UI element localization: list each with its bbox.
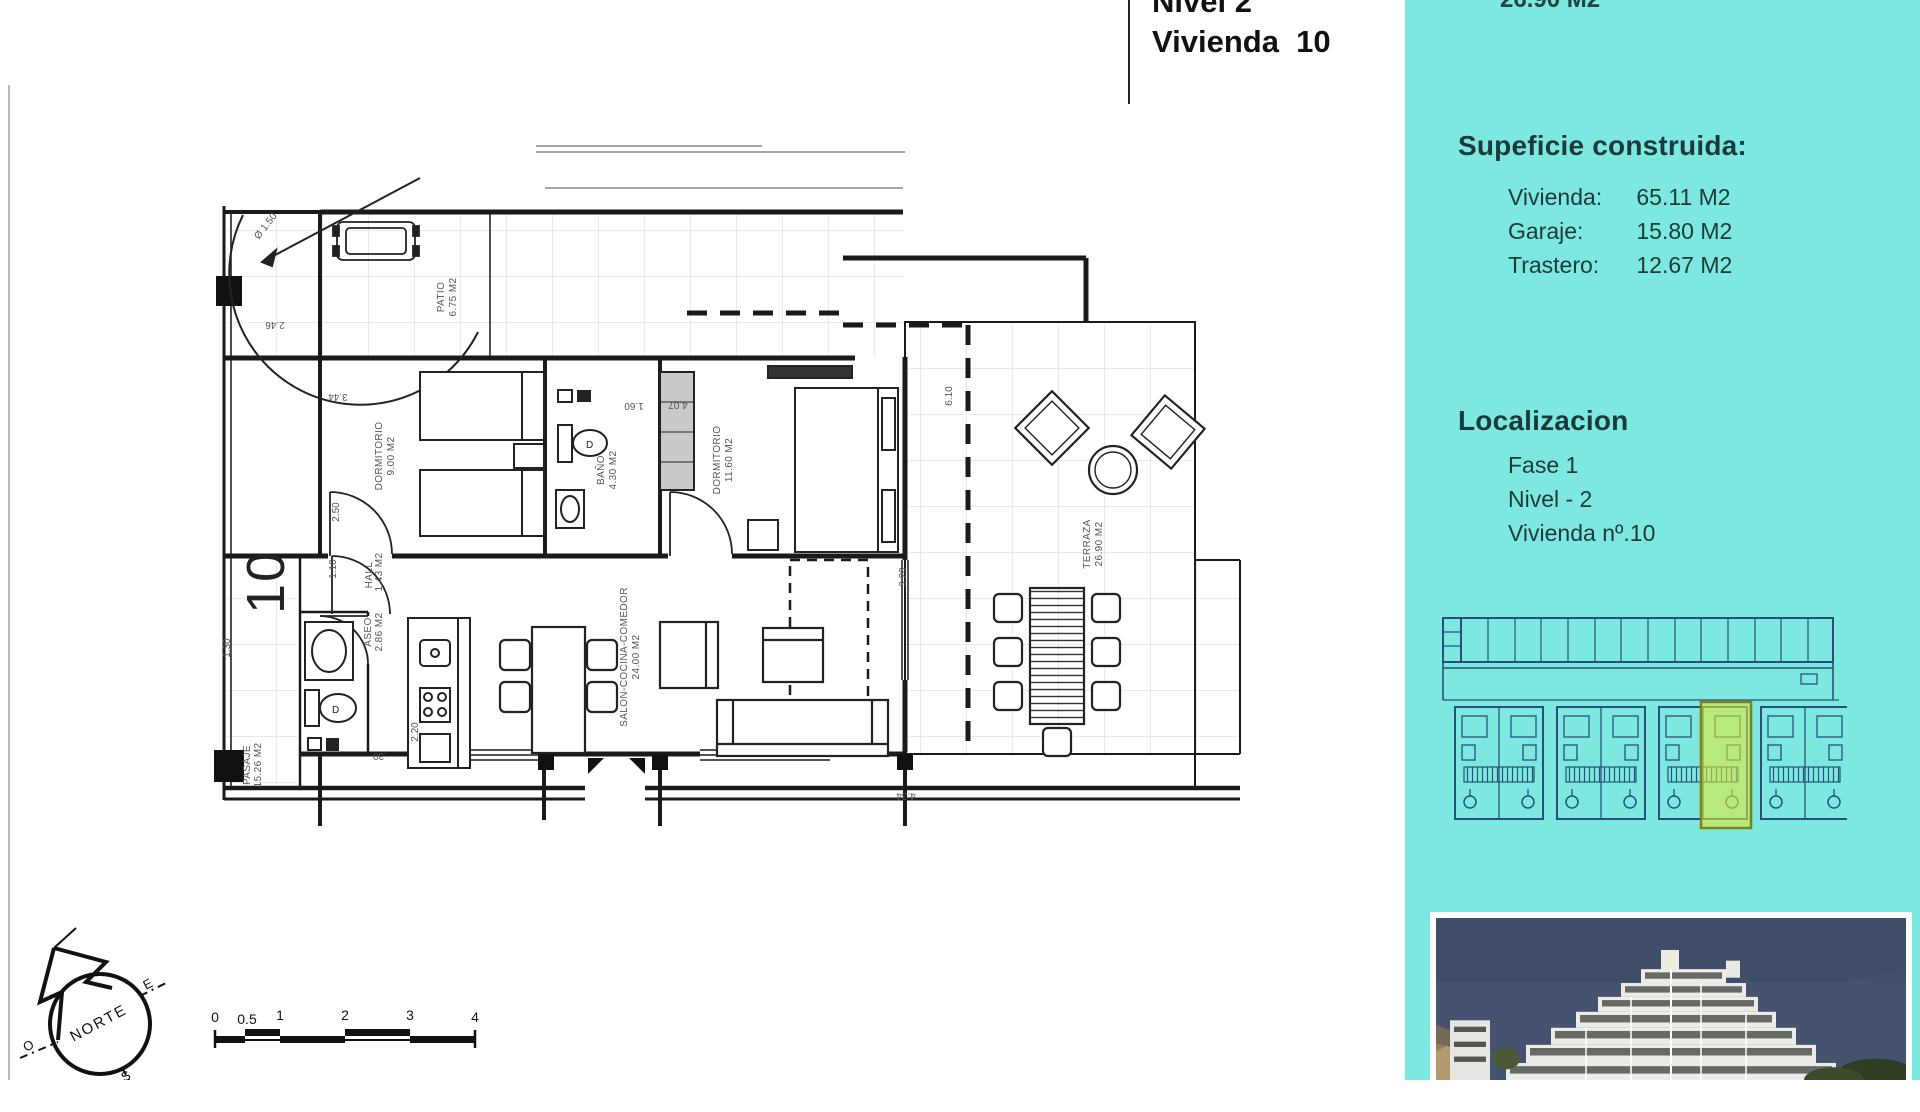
dim-246: 2.46 bbox=[265, 319, 285, 330]
room-area-terraza: 26.90 M2 bbox=[1094, 522, 1105, 567]
dim-130: 1.30 bbox=[222, 638, 233, 658]
building-photo bbox=[1436, 918, 1906, 1080]
surface-value: 15.80 M2 bbox=[1636, 218, 1732, 244]
title-vivienda: Vivienda 10 bbox=[1152, 22, 1331, 62]
surface-label: Trastero: bbox=[1508, 248, 1630, 282]
location-row-fase: Fase 1 bbox=[1508, 448, 1655, 482]
surface-label: Vivienda: bbox=[1508, 180, 1630, 214]
scale-tick-0: 0 bbox=[211, 1009, 219, 1025]
room-area-hall: 1.43 M2 bbox=[374, 552, 385, 591]
room-area-aseo: 2.86 M2 bbox=[374, 612, 385, 651]
room-label-bano: BAÑO bbox=[594, 455, 607, 485]
site-plan-thumbnail bbox=[1435, 612, 1847, 838]
svg-text:D: D bbox=[586, 440, 593, 451]
header-divider bbox=[1128, 0, 1130, 104]
room-label-patio: PATIO bbox=[436, 282, 447, 313]
room-area-patio: 6.75 M2 bbox=[448, 277, 459, 316]
info-sidebar: 26.90 M2 Supeficie construida: Vivienda:… bbox=[1405, 0, 1920, 1080]
boundary-lines bbox=[536, 146, 905, 188]
page-edge-line bbox=[8, 85, 10, 1080]
scale-tick-3: 3 bbox=[406, 1007, 414, 1023]
bedroom2-furniture bbox=[748, 366, 898, 552]
surface-value: 65.11 M2 bbox=[1636, 184, 1730, 210]
room-area-salon: 24.00 M2 bbox=[631, 635, 642, 680]
surface-value: 12.67 M2 bbox=[1636, 252, 1732, 278]
dim-160: 1.60 bbox=[624, 400, 644, 411]
scale-tick-4: 4 bbox=[471, 1009, 479, 1025]
location-rows: Fase 1 Nivel - 2 Vivienda nº.10 bbox=[1508, 448, 1655, 550]
room-area-pasaje: 15.26 M2 bbox=[253, 743, 264, 788]
location-row-vivienda: Vivienda nº.10 bbox=[1508, 516, 1655, 550]
room-label-terraza: TERRAZA bbox=[1082, 519, 1093, 568]
scale-tick-05: 0.5 bbox=[237, 1011, 257, 1027]
title-level: Nivel 2 bbox=[1152, 0, 1252, 22]
dim-610: 6.10 bbox=[944, 386, 955, 406]
surface-row-vivienda: Vivienda: 65.11 M2 bbox=[1508, 180, 1732, 214]
garage-row bbox=[1443, 618, 1839, 700]
salon-seating bbox=[660, 622, 888, 756]
room-label-aseo: ASEO bbox=[363, 617, 374, 646]
room-area-dormitorio1: 9.00 M2 bbox=[386, 436, 397, 475]
svg-text:D: D bbox=[332, 705, 339, 716]
compass-west-label: O bbox=[20, 1037, 36, 1055]
plan-title-block: Nivel 2 Vivienda 10 bbox=[1152, 0, 1169, 120]
dim-220: 2.20 bbox=[410, 722, 421, 742]
compass: NORTE E O S bbox=[20, 928, 168, 1080]
dim-344: 3.44 bbox=[328, 391, 348, 402]
room-label-salon: SALON-COCINA-COMEDOR bbox=[619, 587, 630, 727]
aseo-fixtures: D bbox=[305, 622, 356, 750]
kitchen-counter bbox=[408, 618, 470, 768]
surface-row-garaje: Garaje: 15.80 M2 bbox=[1508, 214, 1732, 248]
room-label-dormitorio2: DORMITORIO bbox=[712, 426, 723, 495]
dim-407: 4.07 bbox=[668, 399, 688, 410]
building-photo-frame bbox=[1430, 912, 1912, 1112]
unit-row bbox=[1455, 707, 1847, 819]
scale-tick-1: 1 bbox=[276, 1007, 284, 1023]
plan-sheet-page: { "colors": {"sidebar_bg": "#7de8e0", "h… bbox=[0, 0, 1920, 1080]
wardrobe bbox=[660, 372, 694, 490]
scale-bar: 0 0.5 1 2 3 4 bbox=[211, 1007, 479, 1048]
scale-tick-2: 2 bbox=[341, 1007, 349, 1023]
surface-row-trastero: Trastero: 12.67 M2 bbox=[1508, 248, 1732, 282]
location-title: Localizacion bbox=[1458, 405, 1628, 437]
room-area-dormitorio2: 11.60 M2 bbox=[724, 438, 735, 482]
dim-250: 2.50 bbox=[331, 502, 342, 522]
compass-south-label: S bbox=[118, 1067, 133, 1080]
dim-320: 3.20 bbox=[898, 567, 909, 587]
location-row-nivel: Nivel - 2 bbox=[1508, 482, 1655, 516]
room-label-dormitorio1: DORMITORIO bbox=[374, 422, 385, 491]
dim-110: 1.10 bbox=[328, 559, 339, 579]
cutoff-area-text: 26.90 M2 bbox=[1500, 0, 1600, 14]
surface-rows: Vivienda: 65.11 M2 Garaje: 15.80 M2 Tras… bbox=[1508, 180, 1732, 282]
surface-label: Garaje: bbox=[1508, 214, 1630, 248]
room-label-pasaje: PASAJE bbox=[242, 745, 253, 785]
floor-plan-drawing: D D bbox=[0, 0, 1440, 1080]
surface-title: Supeficie construida: bbox=[1458, 130, 1747, 162]
highlighted-unit bbox=[1701, 702, 1751, 828]
dim-434: 4.34 bbox=[896, 790, 916, 801]
dining-set bbox=[500, 627, 617, 753]
unit-number-label: 10 bbox=[236, 550, 296, 614]
bedroom1-furniture bbox=[420, 372, 544, 536]
room-area-bano: 4.30 M2 bbox=[608, 450, 619, 489]
dim-30: .30 bbox=[373, 750, 387, 761]
